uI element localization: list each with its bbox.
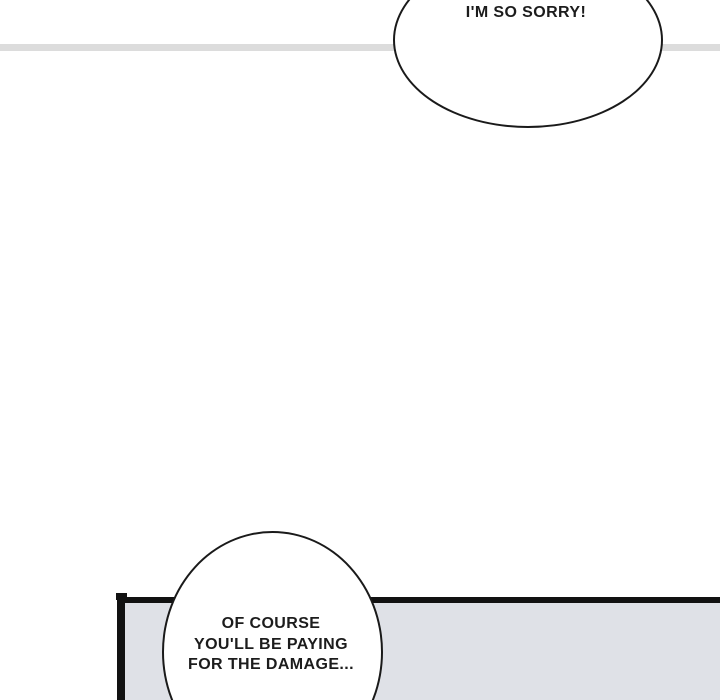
speech-line-3: FOR THE DAMAGE... [150,655,392,676]
speech-line-2: YOU'LL BE PAYING [150,635,392,656]
panel-border-corner-cap [116,593,127,600]
speech-bubble-bottom-text: OF COURSE YOU'LL BE PAYING FOR THE DAMAG… [150,614,392,676]
comic-page: I'M SO SORRY! OF COURSE YOU'LL BE PAYING… [0,0,720,700]
speech-line-1: OF COURSE [150,614,392,635]
speech-bubble-top-text: I'M SO SORRY! [393,3,659,22]
